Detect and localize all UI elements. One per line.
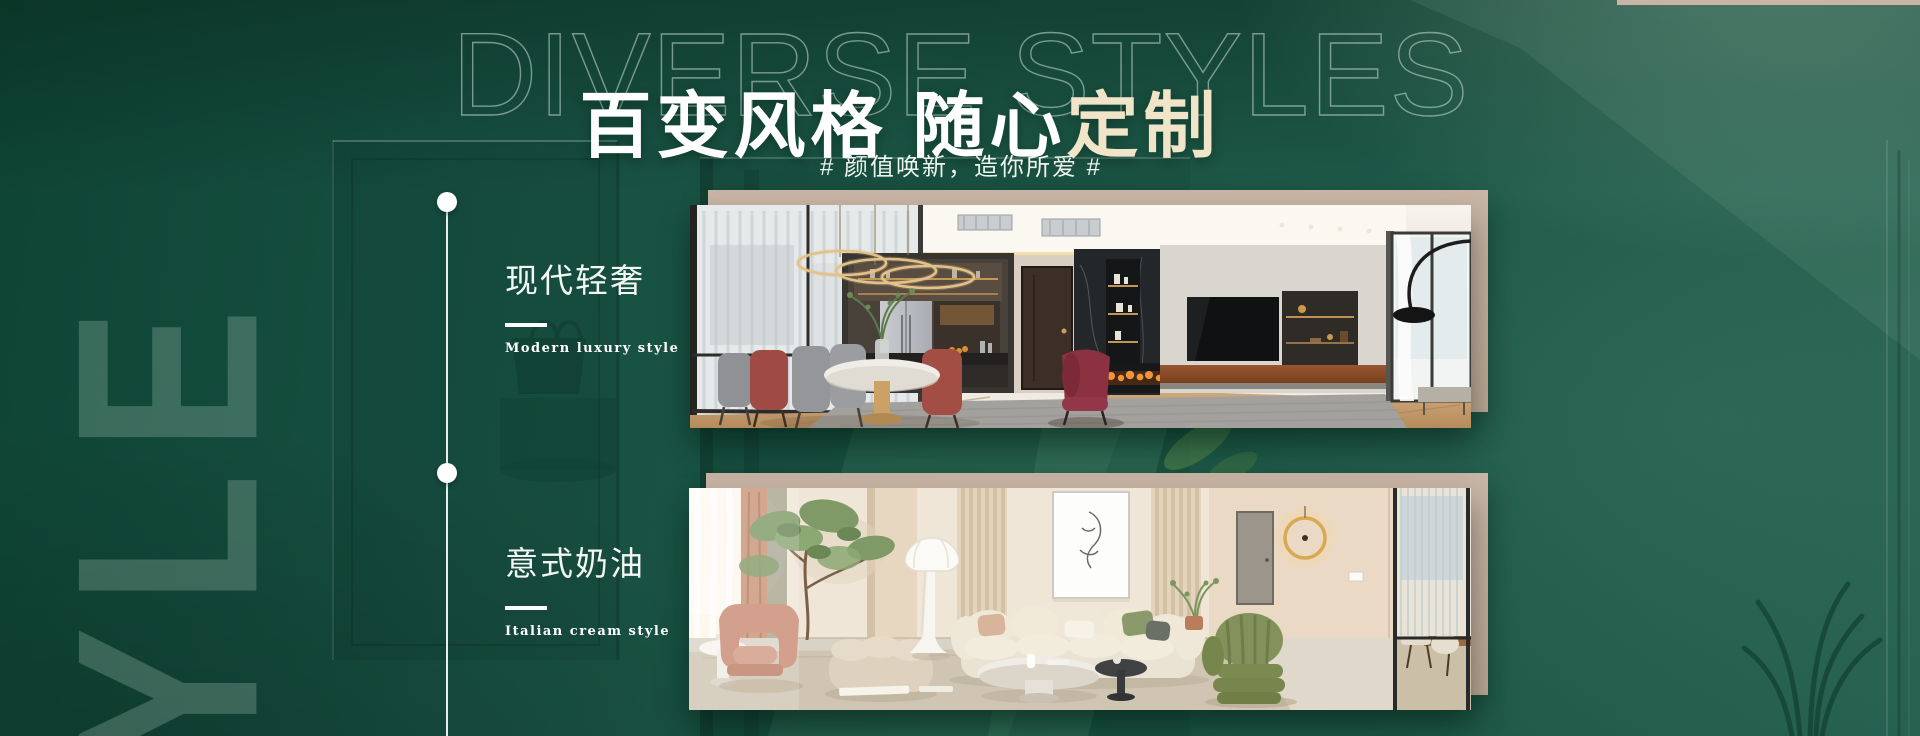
style-item-italian-cream[interactable]: 意式奶油 Italian cream style: [505, 547, 670, 639]
photo-modern-luxury[interactable]: [690, 205, 1471, 428]
ml-room: [690, 205, 1471, 428]
dining-nook: [1393, 488, 1471, 710]
label-underline: [505, 606, 547, 610]
hero-banner: DIVERSE STYLES STYLE 百变风格 随心定制 # 颜值唤新，造你…: [0, 0, 1920, 736]
style-zh-label: 现代轻奢: [505, 264, 679, 297]
photo-italian-cream[interactable]: [689, 488, 1471, 710]
style-en-label: Italian cream style: [505, 624, 670, 639]
timeline-dot-1: [437, 192, 457, 212]
top-tan-strip: [1617, 0, 1920, 5]
label-underline: [505, 323, 547, 327]
ic-room: [689, 488, 1471, 710]
style-zh-label: 意式奶油: [505, 547, 670, 580]
style-item-modern-luxury[interactable]: 现代轻奢 Modern luxury style: [505, 264, 679, 356]
line-art-picture: [1053, 492, 1129, 602]
plant-silhouette: [1744, 584, 1880, 736]
side-vertical-word: STYLE: [38, 286, 296, 736]
style-en-label: Modern luxury style: [505, 341, 679, 356]
page-subtitle: # 颜值唤新，造你所爱 #: [820, 147, 1102, 182]
timeline-dot-2: [437, 463, 457, 483]
